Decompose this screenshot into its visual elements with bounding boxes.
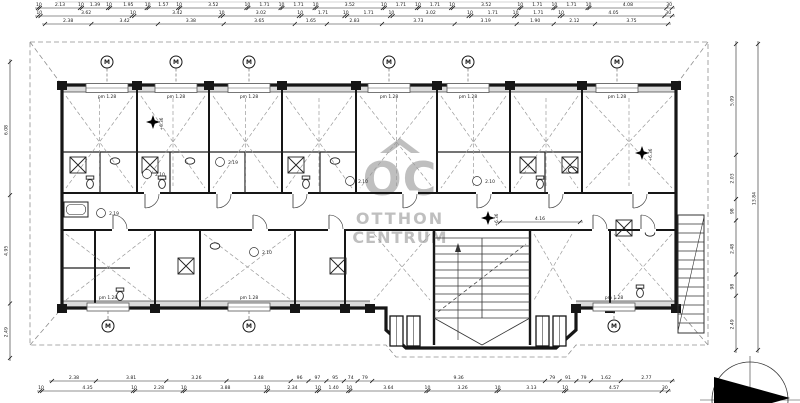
svg-text:1.95: 1.95 [123, 2, 133, 8]
door-height-label: 2.10 [358, 179, 368, 185]
svg-text:3.02: 3.02 [256, 10, 266, 16]
svg-text:1.71: 1.71 [318, 10, 328, 16]
elevation-star [635, 146, 649, 160]
fixtures [70, 157, 655, 300]
svg-text:1.71: 1.71 [363, 10, 373, 16]
svg-text:3.52: 3.52 [481, 2, 491, 8]
svg-text:3.64: 3.64 [383, 385, 393, 391]
svg-text:30: 30 [662, 385, 668, 391]
svg-text:1.65: 1.65 [306, 18, 316, 24]
staircase [434, 238, 530, 345]
svg-text:79: 79 [581, 375, 587, 381]
svg-text:1.71: 1.71 [259, 2, 269, 8]
svg-text:3.26: 3.26 [457, 385, 467, 391]
door-height-label: 2.10 [485, 179, 495, 185]
svg-text:2.38: 2.38 [69, 375, 79, 381]
svg-text:2.28: 2.28 [154, 385, 164, 391]
svg-text:1.62: 1.62 [601, 375, 611, 381]
svg-text:9.36: 9.36 [453, 375, 463, 381]
svg-text:4.95: 4.95 [4, 246, 10, 256]
svg-text:3.13: 3.13 [526, 385, 536, 391]
door-height-label: 2.10 [155, 172, 165, 178]
svg-text:3.42: 3.42 [172, 10, 182, 16]
bathtub [64, 202, 88, 217]
svg-text:1.71: 1.71 [533, 10, 543, 16]
wall-piers [57, 81, 681, 313]
svg-text:3.65: 3.65 [254, 18, 264, 24]
sill-label: pm 1.28 [380, 94, 398, 100]
svg-text:3.42: 3.42 [120, 18, 130, 24]
elevation-label: +6.36 [494, 213, 499, 226]
svg-text:M: M [246, 59, 252, 66]
svg-text:3.52: 3.52 [345, 2, 355, 8]
svg-text:3.19: 3.19 [481, 18, 491, 24]
grid-marker: M [611, 56, 623, 83]
svg-text:M: M [104, 59, 110, 66]
grid-marker: M [383, 56, 395, 83]
grid-marker: M [102, 311, 114, 332]
svg-text:2.48: 2.48 [730, 244, 736, 254]
bay-window-left [390, 316, 420, 346]
svg-text:79: 79 [362, 375, 368, 381]
svg-text:30: 30 [666, 2, 672, 8]
svg-text:2.49: 2.49 [4, 327, 10, 337]
svg-text:3.52: 3.52 [208, 2, 218, 8]
svg-text:95: 95 [332, 375, 338, 381]
bay-window-right [536, 316, 566, 346]
external-stair [678, 215, 704, 333]
grid-marker: M [608, 311, 620, 332]
svg-text:91: 91 [565, 375, 571, 381]
svg-text:4.16: 4.16 [535, 216, 545, 222]
svg-text:1.90: 1.90 [530, 18, 540, 24]
dim-chain-bottom-row-1: 2.383.813.263.4896979574799.367991791.62… [49, 375, 675, 383]
svg-text:M: M [173, 59, 179, 66]
svg-text:M: M [611, 323, 617, 330]
svg-text:1.40: 1.40 [329, 385, 339, 391]
svg-text:1.39: 1.39 [90, 2, 100, 8]
dim-chain-top-row-2: 103.62103.42103.02101.71101.71103.02101.… [35, 10, 675, 18]
dim-chain-right-col-outer: 13.84 [752, 41, 761, 353]
svg-text:6.08: 6.08 [4, 125, 10, 135]
svg-text:2.13: 2.13 [55, 2, 65, 8]
dim-chain-top-row-3: 2.383.423.383.651.652.833.733.191.902.12… [42, 18, 671, 26]
svg-text:4.57: 4.57 [609, 385, 619, 391]
dim-chain-left-col: 6.084.952.49 [4, 59, 13, 361]
dim-chain-right-col-inner: 5.092.03982.48982.49 [730, 41, 739, 353]
doors [112, 191, 656, 233]
svg-text:4.35: 4.35 [82, 385, 92, 391]
grid-marker: M [462, 56, 474, 83]
svg-text:3.02: 3.02 [426, 10, 436, 16]
svg-text:3.81: 3.81 [126, 375, 136, 381]
svg-text:3.48: 3.48 [253, 375, 263, 381]
svg-text:96: 96 [297, 375, 303, 381]
svg-text:3.73: 3.73 [413, 18, 423, 24]
svg-text:3.38: 3.38 [186, 18, 196, 24]
svg-text:3.88: 3.88 [220, 385, 230, 391]
floorplan-canvas: OC OTTHON CENTRUM [0, 0, 800, 403]
svg-text:M: M [386, 59, 392, 66]
svg-text:98: 98 [730, 284, 736, 290]
svg-text:5.09: 5.09 [730, 96, 736, 106]
svg-text:3.75: 3.75 [626, 18, 636, 24]
door-height-label: 2.19 [109, 211, 119, 217]
svg-text:98: 98 [730, 208, 736, 214]
sill-label: pm 1.28 [240, 94, 258, 100]
svg-text:1.71: 1.71 [532, 2, 542, 8]
svg-text:M: M [105, 323, 111, 330]
svg-text:2.34: 2.34 [287, 385, 297, 391]
sill-label: pm 1.28 [99, 295, 117, 301]
svg-text:4.05: 4.05 [608, 10, 618, 16]
sill-label: pm 1.28 [605, 295, 623, 301]
grid-marker: M [243, 311, 255, 332]
dim-chain-top-row-1: 102.13101.39101.95101.57103.52101.71101.… [35, 2, 675, 10]
svg-text:1.71: 1.71 [488, 10, 498, 16]
svg-text:M: M [246, 323, 252, 330]
elevation-star [481, 211, 495, 225]
elevation-label: +6.36 [648, 148, 653, 161]
svg-text:2.77: 2.77 [641, 375, 651, 381]
sill-label: pm 1.28 [459, 94, 477, 100]
svg-text:97: 97 [314, 375, 320, 381]
grid-marker: M [243, 56, 255, 83]
sill-label: pm 1.28 [608, 94, 626, 100]
elevation-label: +6.36 [159, 117, 164, 130]
text-labels: pm 1.28pm 1.28pm 1.28pm 1.28pm 1.28pm 1.… [97, 94, 654, 301]
svg-text:2.03: 2.03 [730, 173, 736, 183]
svg-text:3.26: 3.26 [191, 375, 201, 381]
north-arrow [700, 356, 800, 403]
svg-text:1.71: 1.71 [430, 2, 440, 8]
svg-text:1.71: 1.71 [566, 2, 576, 8]
door-height-label: 2.10 [262, 250, 272, 256]
svg-text:13.84: 13.84 [752, 192, 758, 205]
svg-text:79: 79 [549, 375, 555, 381]
svg-text:M: M [465, 59, 471, 66]
svg-text:2.83: 2.83 [349, 18, 359, 24]
stair-direction-arrow [455, 243, 461, 252]
svg-text:3.62: 3.62 [81, 10, 91, 16]
sill-label: pm 1.28 [98, 94, 116, 100]
dim-chain-stair-width: 4.16 [497, 216, 583, 224]
svg-text:1.71: 1.71 [293, 2, 303, 8]
svg-text:4.08: 4.08 [623, 2, 633, 8]
svg-text:1.71: 1.71 [396, 2, 406, 8]
svg-text:1.57: 1.57 [158, 2, 168, 8]
north-arrow-pointer [714, 377, 790, 403]
svg-text:2.38: 2.38 [63, 18, 73, 24]
svg-text:2.49: 2.49 [730, 319, 736, 329]
floorplan-drawing: 102.13101.39101.95101.57103.52101.71101.… [0, 0, 800, 403]
svg-text:74: 74 [348, 375, 354, 381]
grid-marker: M [101, 56, 113, 83]
sill-label: pm 1.28 [167, 94, 185, 100]
door-height-label: 2.19 [228, 160, 238, 166]
dim-chain-bottom-row-2: 104.35102.28103.88102.34101.40103.64103.… [37, 385, 671, 393]
elevation-star [146, 115, 160, 129]
sill-label: pm 1.28 [240, 295, 258, 301]
svg-text:2.12: 2.12 [569, 18, 579, 24]
grid-marker: M [170, 56, 182, 83]
svg-text:M: M [614, 59, 620, 66]
svg-text:30: 30 [665, 10, 671, 16]
